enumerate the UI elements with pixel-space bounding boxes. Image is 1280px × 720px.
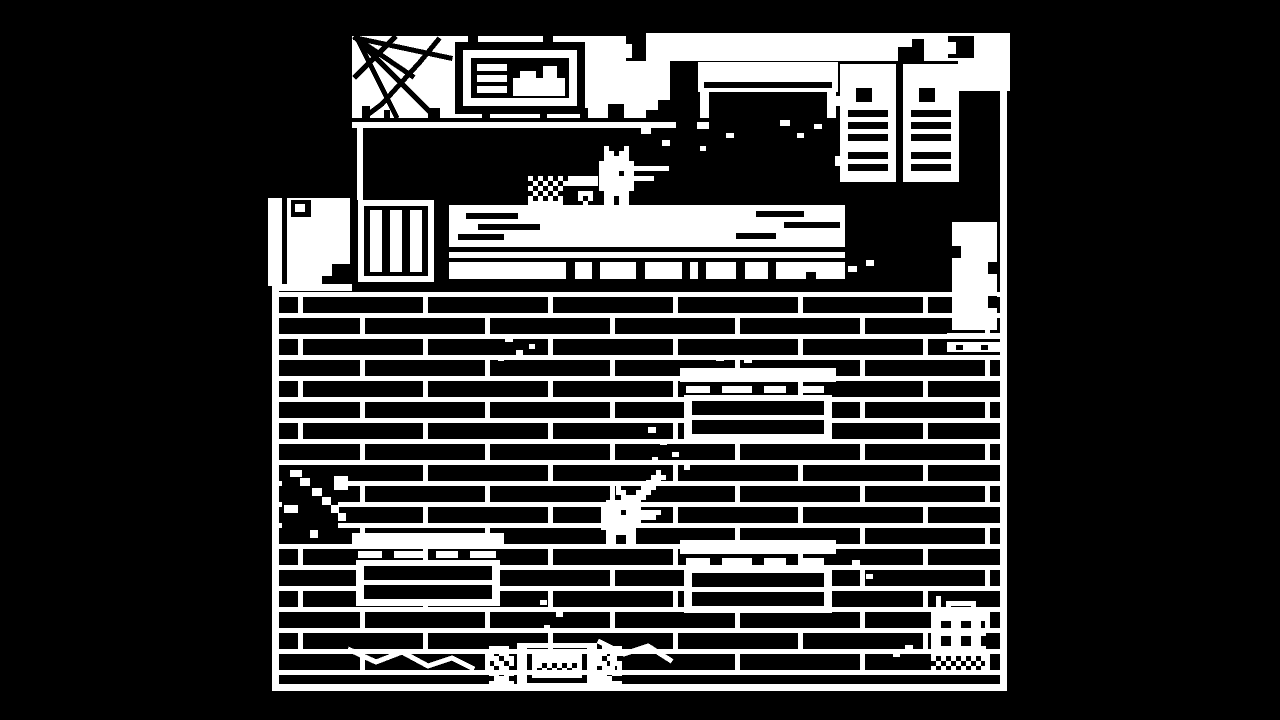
- dog-shopkeeper-pixel: [629, 186, 634, 191]
- sprites: [0, 0, 1280, 720]
- player-duck-pixel: [656, 510, 661, 515]
- player-duck-pixel: [611, 540, 616, 545]
- cash-register: [528, 176, 603, 206]
- dog-shopkeeper-pixel: [649, 176, 654, 181]
- doormat-pixel: [577, 673, 582, 678]
- player-duck-pixel: [631, 540, 636, 545]
- game-stage[interactable]: [0, 0, 1280, 720]
- dog-shopkeeper: [594, 146, 674, 206]
- player-duck-pixel: [641, 495, 646, 500]
- player-duck-pixel: [651, 485, 656, 490]
- dog-shopkeeper-pixel: [664, 166, 669, 171]
- player-duck-pixel: [646, 490, 651, 495]
- doormat: [517, 643, 597, 688]
- cart-pixel: [981, 656, 986, 661]
- cart: [926, 596, 991, 671]
- cash-register-pixel: [558, 186, 563, 191]
- player-duck-pixel: [661, 475, 666, 480]
- cart-pixel: [941, 666, 946, 671]
- player-duck-pixel: [636, 520, 641, 525]
- cash-register-pixel: [593, 181, 598, 186]
- cart-pixel: [951, 666, 956, 671]
- cart-pixel: [971, 666, 976, 671]
- floor-patch-right-pixel: [617, 681, 622, 686]
- cart-pixel: [931, 666, 936, 671]
- floor-patch-left-pixel: [509, 661, 514, 666]
- cash-register-pixel: [588, 196, 593, 201]
- floor-patch-right: [597, 646, 622, 686]
- dog-shopkeeper-pixel: [624, 201, 629, 206]
- player-duck-pixel: [656, 480, 661, 485]
- cash-register-pixel: [558, 201, 563, 206]
- cart-pixel: [981, 631, 986, 636]
- floor-patch-right-pixel: [617, 671, 622, 676]
- floor-patch-right-pixel: [617, 651, 622, 656]
- player-duck: [596, 470, 671, 545]
- cart-pixel: [981, 666, 986, 671]
- floor-patch-left-pixel: [509, 671, 514, 676]
- floor-patch-left: [489, 646, 514, 686]
- cart-pixel: [981, 616, 986, 621]
- player-duck-pixel: [651, 515, 656, 520]
- cart-pixel: [961, 666, 966, 671]
- dog-shopkeeper-pixel: [609, 201, 614, 206]
- cash-register-pixel: [583, 201, 588, 206]
- floor-patch-left-pixel: [509, 681, 514, 686]
